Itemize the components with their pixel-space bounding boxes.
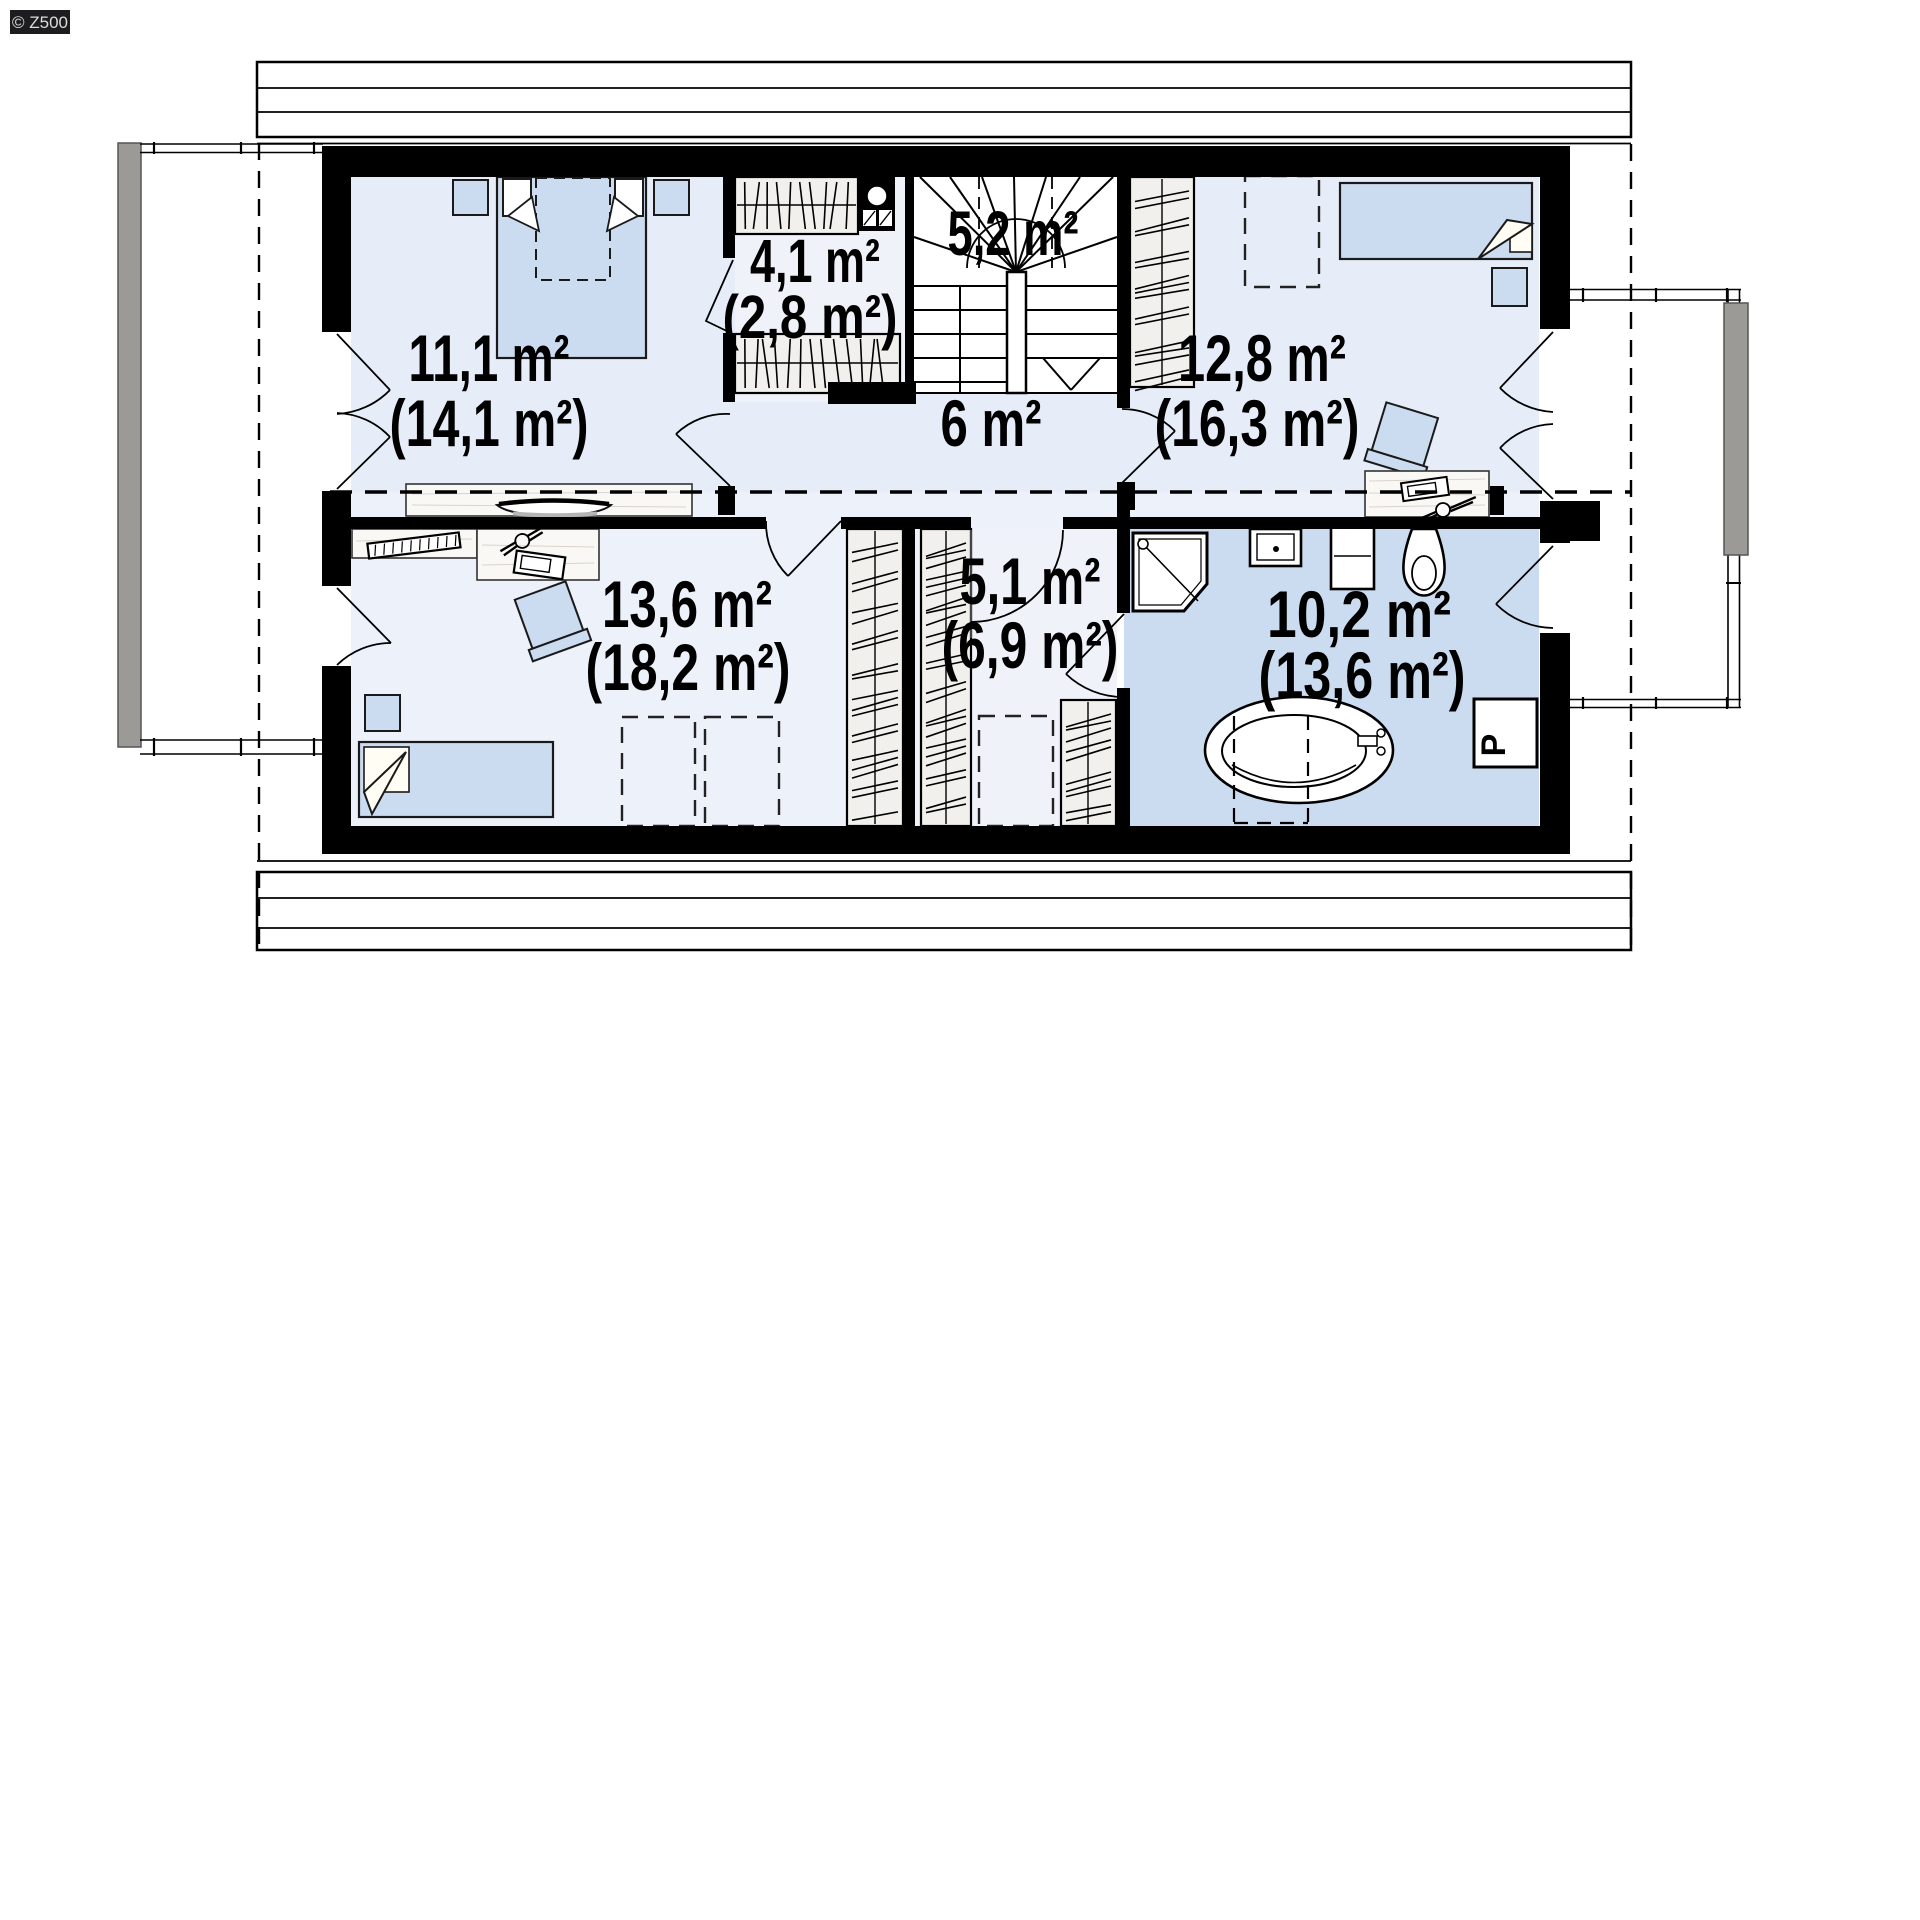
svg-text:(6,9 m²): (6,9 m²) — [942, 608, 1119, 682]
svg-text:6 m²: 6 m² — [941, 386, 1042, 460]
svg-text:(18,2 m²): (18,2 m²) — [586, 630, 791, 704]
svg-text:(16,3 m²): (16,3 m²) — [1155, 386, 1360, 460]
svg-text:11,1 m²: 11,1 m² — [409, 321, 570, 395]
svg-text:© Z500: © Z500 — [12, 13, 68, 32]
svg-text:12,8 m²: 12,8 m² — [1178, 321, 1346, 395]
svg-text:(13,6 m²): (13,6 m²) — [1259, 638, 1466, 712]
svg-text:P: P — [1475, 734, 1513, 757]
svg-text:5,1 m²: 5,1 m² — [960, 544, 1101, 618]
svg-text:5,2 m²: 5,2 m² — [948, 199, 1079, 269]
svg-text:(2,8 m²): (2,8 m²) — [723, 283, 898, 351]
svg-text:(14,1 m²): (14,1 m²) — [390, 386, 589, 460]
